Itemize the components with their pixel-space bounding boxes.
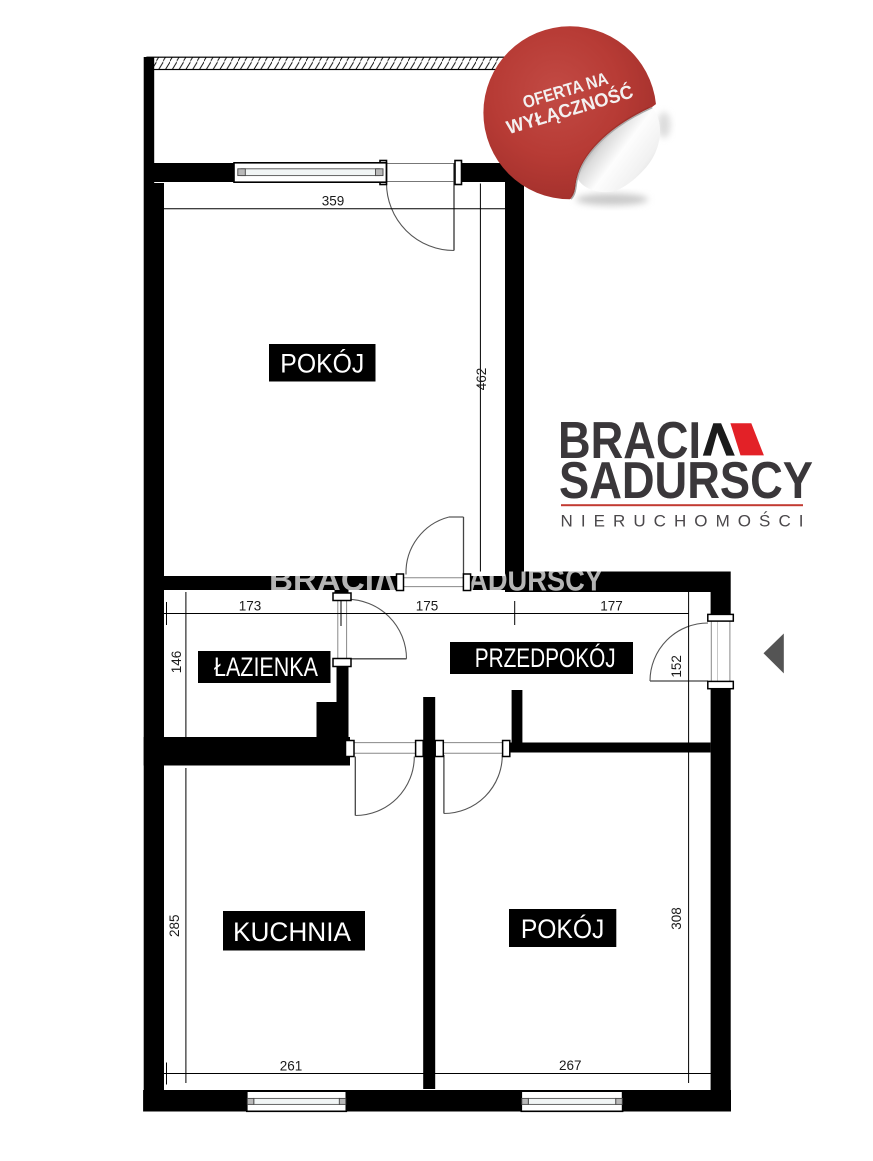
svg-text:KUCHNIA: KUCHNIA: [233, 917, 351, 947]
svg-text:POKÓJ: POKÓJ: [280, 349, 364, 379]
svg-text:146: 146: [169, 651, 184, 674]
svg-text:308: 308: [669, 907, 684, 930]
svg-text:177: 177: [600, 599, 623, 614]
svg-text:267: 267: [559, 1058, 582, 1073]
svg-text:462: 462: [474, 368, 489, 391]
svg-text:285: 285: [167, 914, 182, 937]
svg-text:359: 359: [322, 194, 345, 209]
svg-text:152: 152: [669, 655, 684, 678]
svg-text:NIERUCHOMOŚCI: NIERUCHOMOŚCI: [561, 512, 804, 531]
svg-text:173: 173: [239, 599, 262, 614]
svg-text:ŁAZIENKA: ŁAZIENKA: [214, 652, 318, 682]
svg-text:PRZEDPOKÓJ: PRZEDPOKÓJ: [475, 643, 616, 673]
svg-text:POKÓJ: POKÓJ: [521, 914, 605, 944]
svg-text:261: 261: [280, 1059, 303, 1074]
svg-text:175: 175: [416, 599, 439, 614]
svg-text:SADURSCY: SADURSCY: [559, 451, 813, 509]
